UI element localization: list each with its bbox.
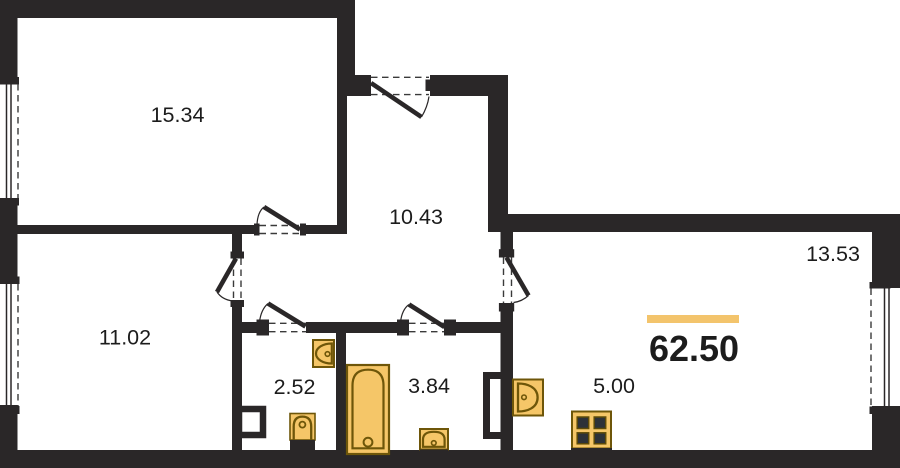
- svg-text:62.50: 62.50: [649, 328, 739, 369]
- svg-text:15.34: 15.34: [151, 103, 205, 127]
- svg-text:3.84: 3.84: [408, 374, 450, 398]
- svg-text:11.02: 11.02: [99, 326, 151, 350]
- svg-text:5.00: 5.00: [593, 374, 635, 398]
- svg-text:2.52: 2.52: [274, 375, 316, 399]
- svg-text:13.53: 13.53: [806, 242, 860, 266]
- svg-text:10.43: 10.43: [389, 205, 443, 229]
